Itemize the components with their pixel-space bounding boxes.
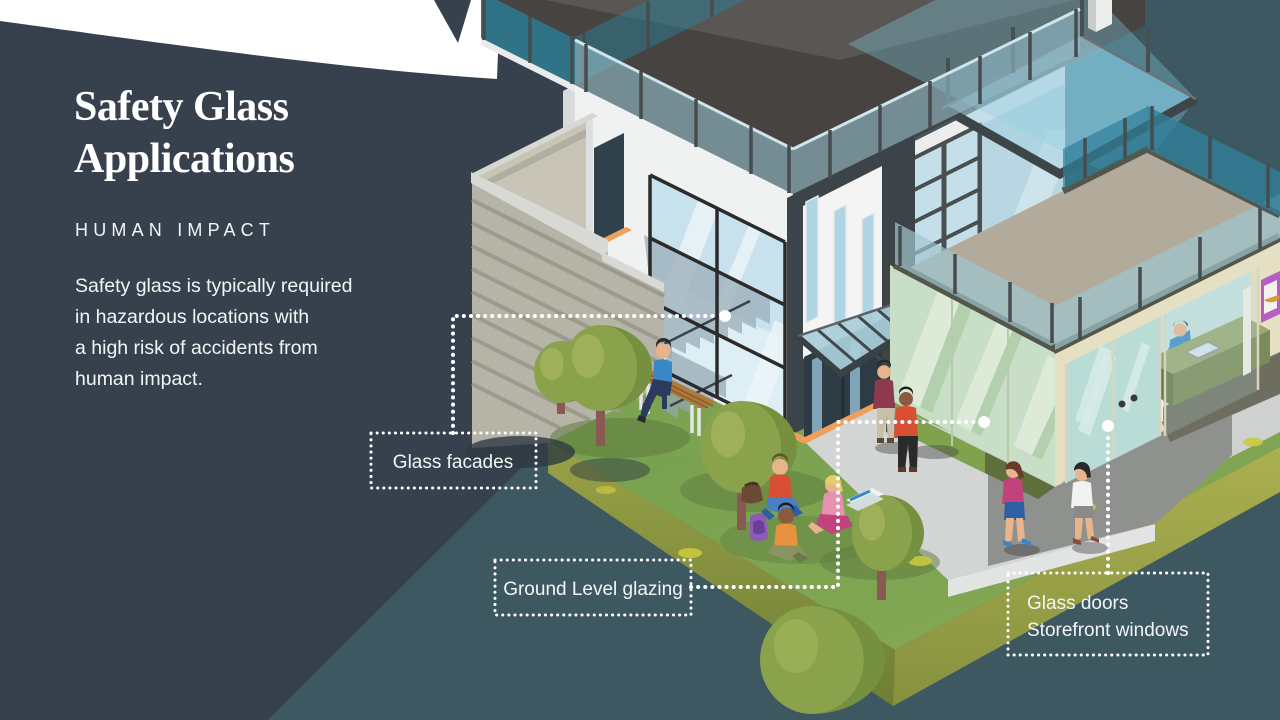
svg-text:Applications: Applications — [74, 136, 295, 182]
svg-text:Safety glass is typically requ: Safety glass is typically required — [75, 275, 352, 297]
svg-text:human impact.: human impact. — [75, 368, 203, 390]
svg-text:in hazardous locations with: in hazardous locations with — [75, 306, 309, 328]
svg-text:Safety Glass: Safety Glass — [74, 84, 289, 130]
svg-text:a high risk of accidents from: a high risk of accidents from — [75, 337, 318, 359]
svg-text:Ground Level glazing: Ground Level glazing — [503, 579, 683, 600]
svg-text:Storefront windows: Storefront windows — [1027, 620, 1189, 641]
svg-text:Glass doors: Glass doors — [1027, 593, 1128, 614]
svg-text:HUMAN IMPACT: HUMAN IMPACT — [75, 220, 275, 240]
svg-text:Glass facades: Glass facades — [393, 452, 513, 473]
